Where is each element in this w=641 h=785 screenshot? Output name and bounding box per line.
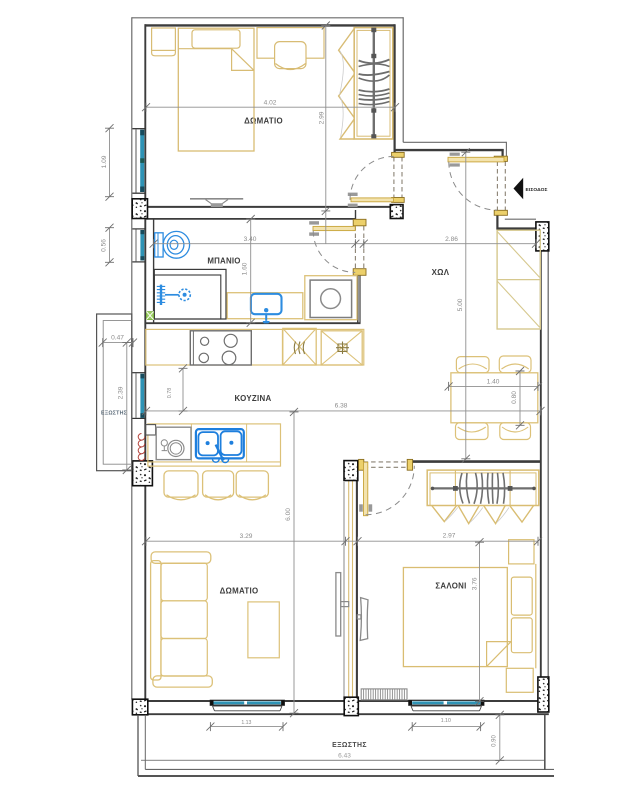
svg-text:0.90: 0.90 [492,735,498,747]
svg-text:0.78: 0.78 [167,388,173,399]
svg-text:ΕΞΩΣΤΗΣ: ΕΞΩΣΤΗΣ [101,410,128,416]
svg-text:6.43: 6.43 [338,752,351,759]
svg-text:ΣΑΛΟΝΙ: ΣΑΛΟΝΙ [435,581,466,590]
svg-text:ΚΟΥΖΙΝΑ: ΚΟΥΖΙΝΑ [234,394,271,403]
svg-text:1.10: 1.10 [441,718,451,724]
svg-text:3.40: 3.40 [244,236,257,243]
svg-text:ΕΞΩΣΤΗΣ: ΕΞΩΣΤΗΣ [332,742,367,749]
svg-text:ΔΩΜΑΤΙΟ: ΔΩΜΑΤΙΟ [244,116,283,125]
svg-text:3.29: 3.29 [240,533,253,540]
svg-text:0.80: 0.80 [511,391,518,404]
svg-text:ΜΠΑΝΙΟ: ΜΠΑΝΙΟ [207,257,240,266]
svg-text:2.97: 2.97 [443,533,456,540]
svg-text:0.47: 0.47 [111,335,124,342]
svg-text:1.09: 1.09 [101,155,108,168]
svg-text:1.60: 1.60 [242,262,249,275]
svg-text:1.13: 1.13 [241,720,251,726]
svg-text:6.38: 6.38 [335,403,348,410]
svg-text:ΔΩΜΑΤΙΟ: ΔΩΜΑΤΙΟ [220,586,259,595]
svg-text:ΧΩΛ: ΧΩΛ [432,268,450,277]
svg-text:ΕΙΣΟΔΟΣ: ΕΙΣΟΔΟΣ [526,187,548,193]
svg-text:0.56: 0.56 [101,239,108,252]
svg-text:2.99: 2.99 [319,111,326,124]
svg-text:2.39: 2.39 [117,386,124,399]
svg-text:3.76: 3.76 [472,577,479,590]
svg-text:6.00: 6.00 [285,508,292,521]
svg-text:5.00: 5.00 [457,298,464,311]
svg-text:4.02: 4.02 [264,100,277,107]
svg-text:1.40: 1.40 [487,379,500,386]
svg-text:2.86: 2.86 [445,236,458,243]
